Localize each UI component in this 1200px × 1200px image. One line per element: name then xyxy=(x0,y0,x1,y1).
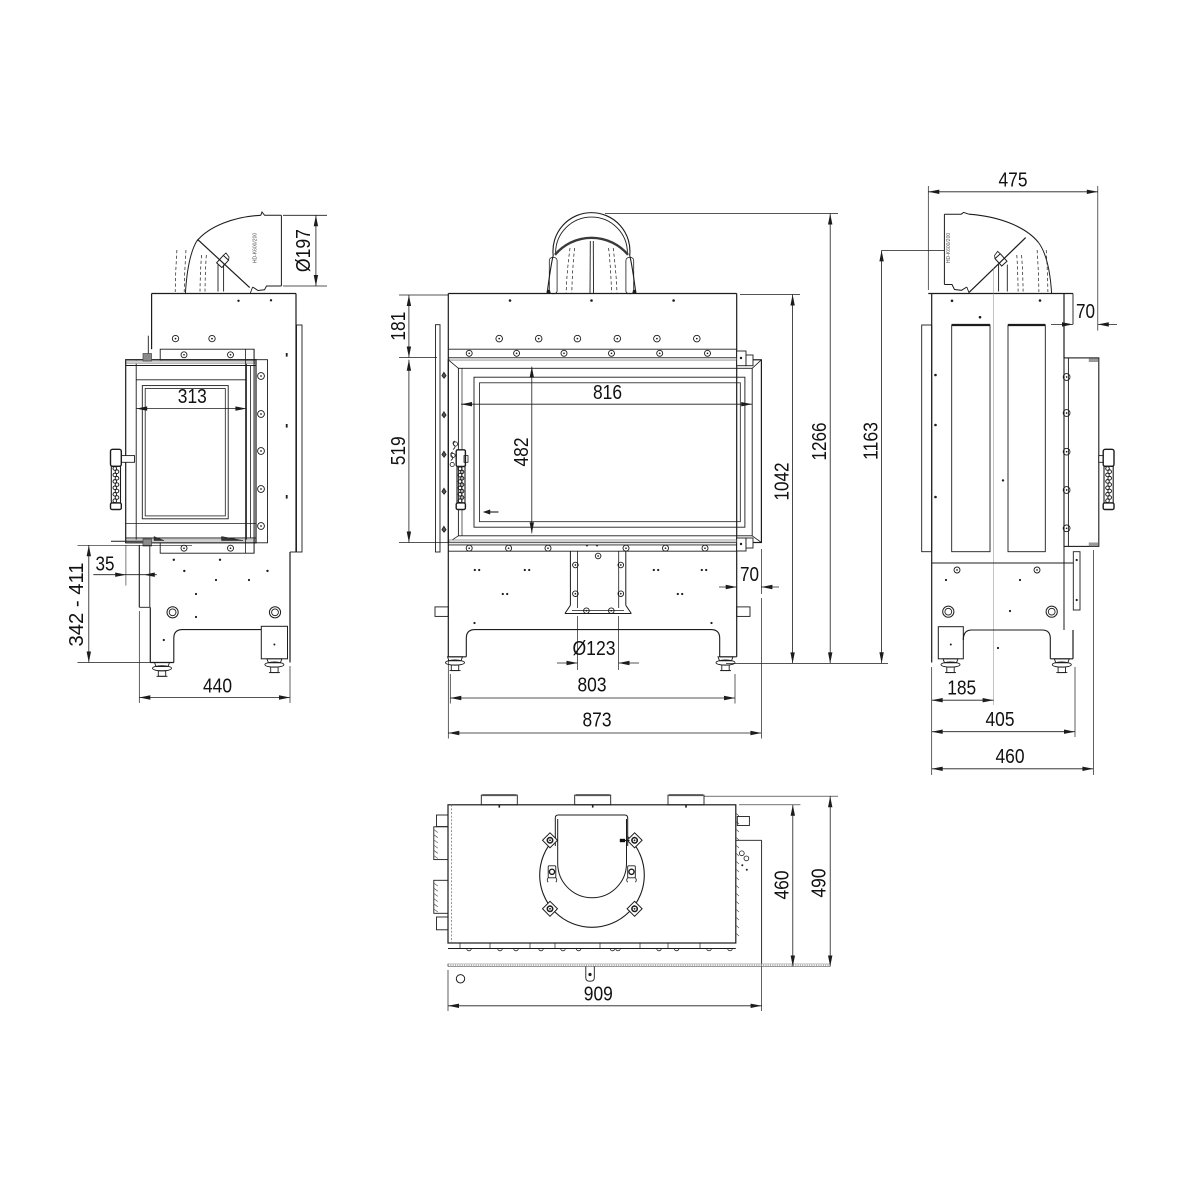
svg-text:35: 35 xyxy=(96,554,115,576)
svg-text:440: 440 xyxy=(203,676,232,698)
svg-text:HD-K600/200: HD-K600/200 xyxy=(253,233,259,264)
svg-text:HD-K600/200: HD-K600/200 xyxy=(946,233,952,264)
svg-text:490: 490 xyxy=(809,869,831,898)
svg-text:Ø197: Ø197 xyxy=(293,229,315,272)
svg-text:873: 873 xyxy=(583,710,612,732)
svg-text:Ø123: Ø123 xyxy=(573,638,616,660)
svg-text:482: 482 xyxy=(511,438,533,467)
svg-text:1163: 1163 xyxy=(860,422,882,460)
svg-text:313: 313 xyxy=(178,386,207,408)
svg-text:185: 185 xyxy=(947,678,976,700)
svg-text:460: 460 xyxy=(996,746,1025,768)
svg-text:342 - 411: 342 - 411 xyxy=(66,563,88,647)
svg-text:816: 816 xyxy=(593,382,622,404)
svg-text:460: 460 xyxy=(772,871,794,900)
svg-text:803: 803 xyxy=(578,675,607,697)
svg-text:475: 475 xyxy=(999,170,1028,192)
svg-text:181: 181 xyxy=(388,312,410,341)
svg-text:1266: 1266 xyxy=(809,423,831,461)
svg-text:909: 909 xyxy=(584,984,613,1006)
svg-text:405: 405 xyxy=(986,709,1015,731)
svg-text:519: 519 xyxy=(388,436,410,465)
svg-text:1042: 1042 xyxy=(771,463,793,501)
svg-text:70: 70 xyxy=(740,564,759,586)
svg-text:70: 70 xyxy=(1076,301,1095,323)
